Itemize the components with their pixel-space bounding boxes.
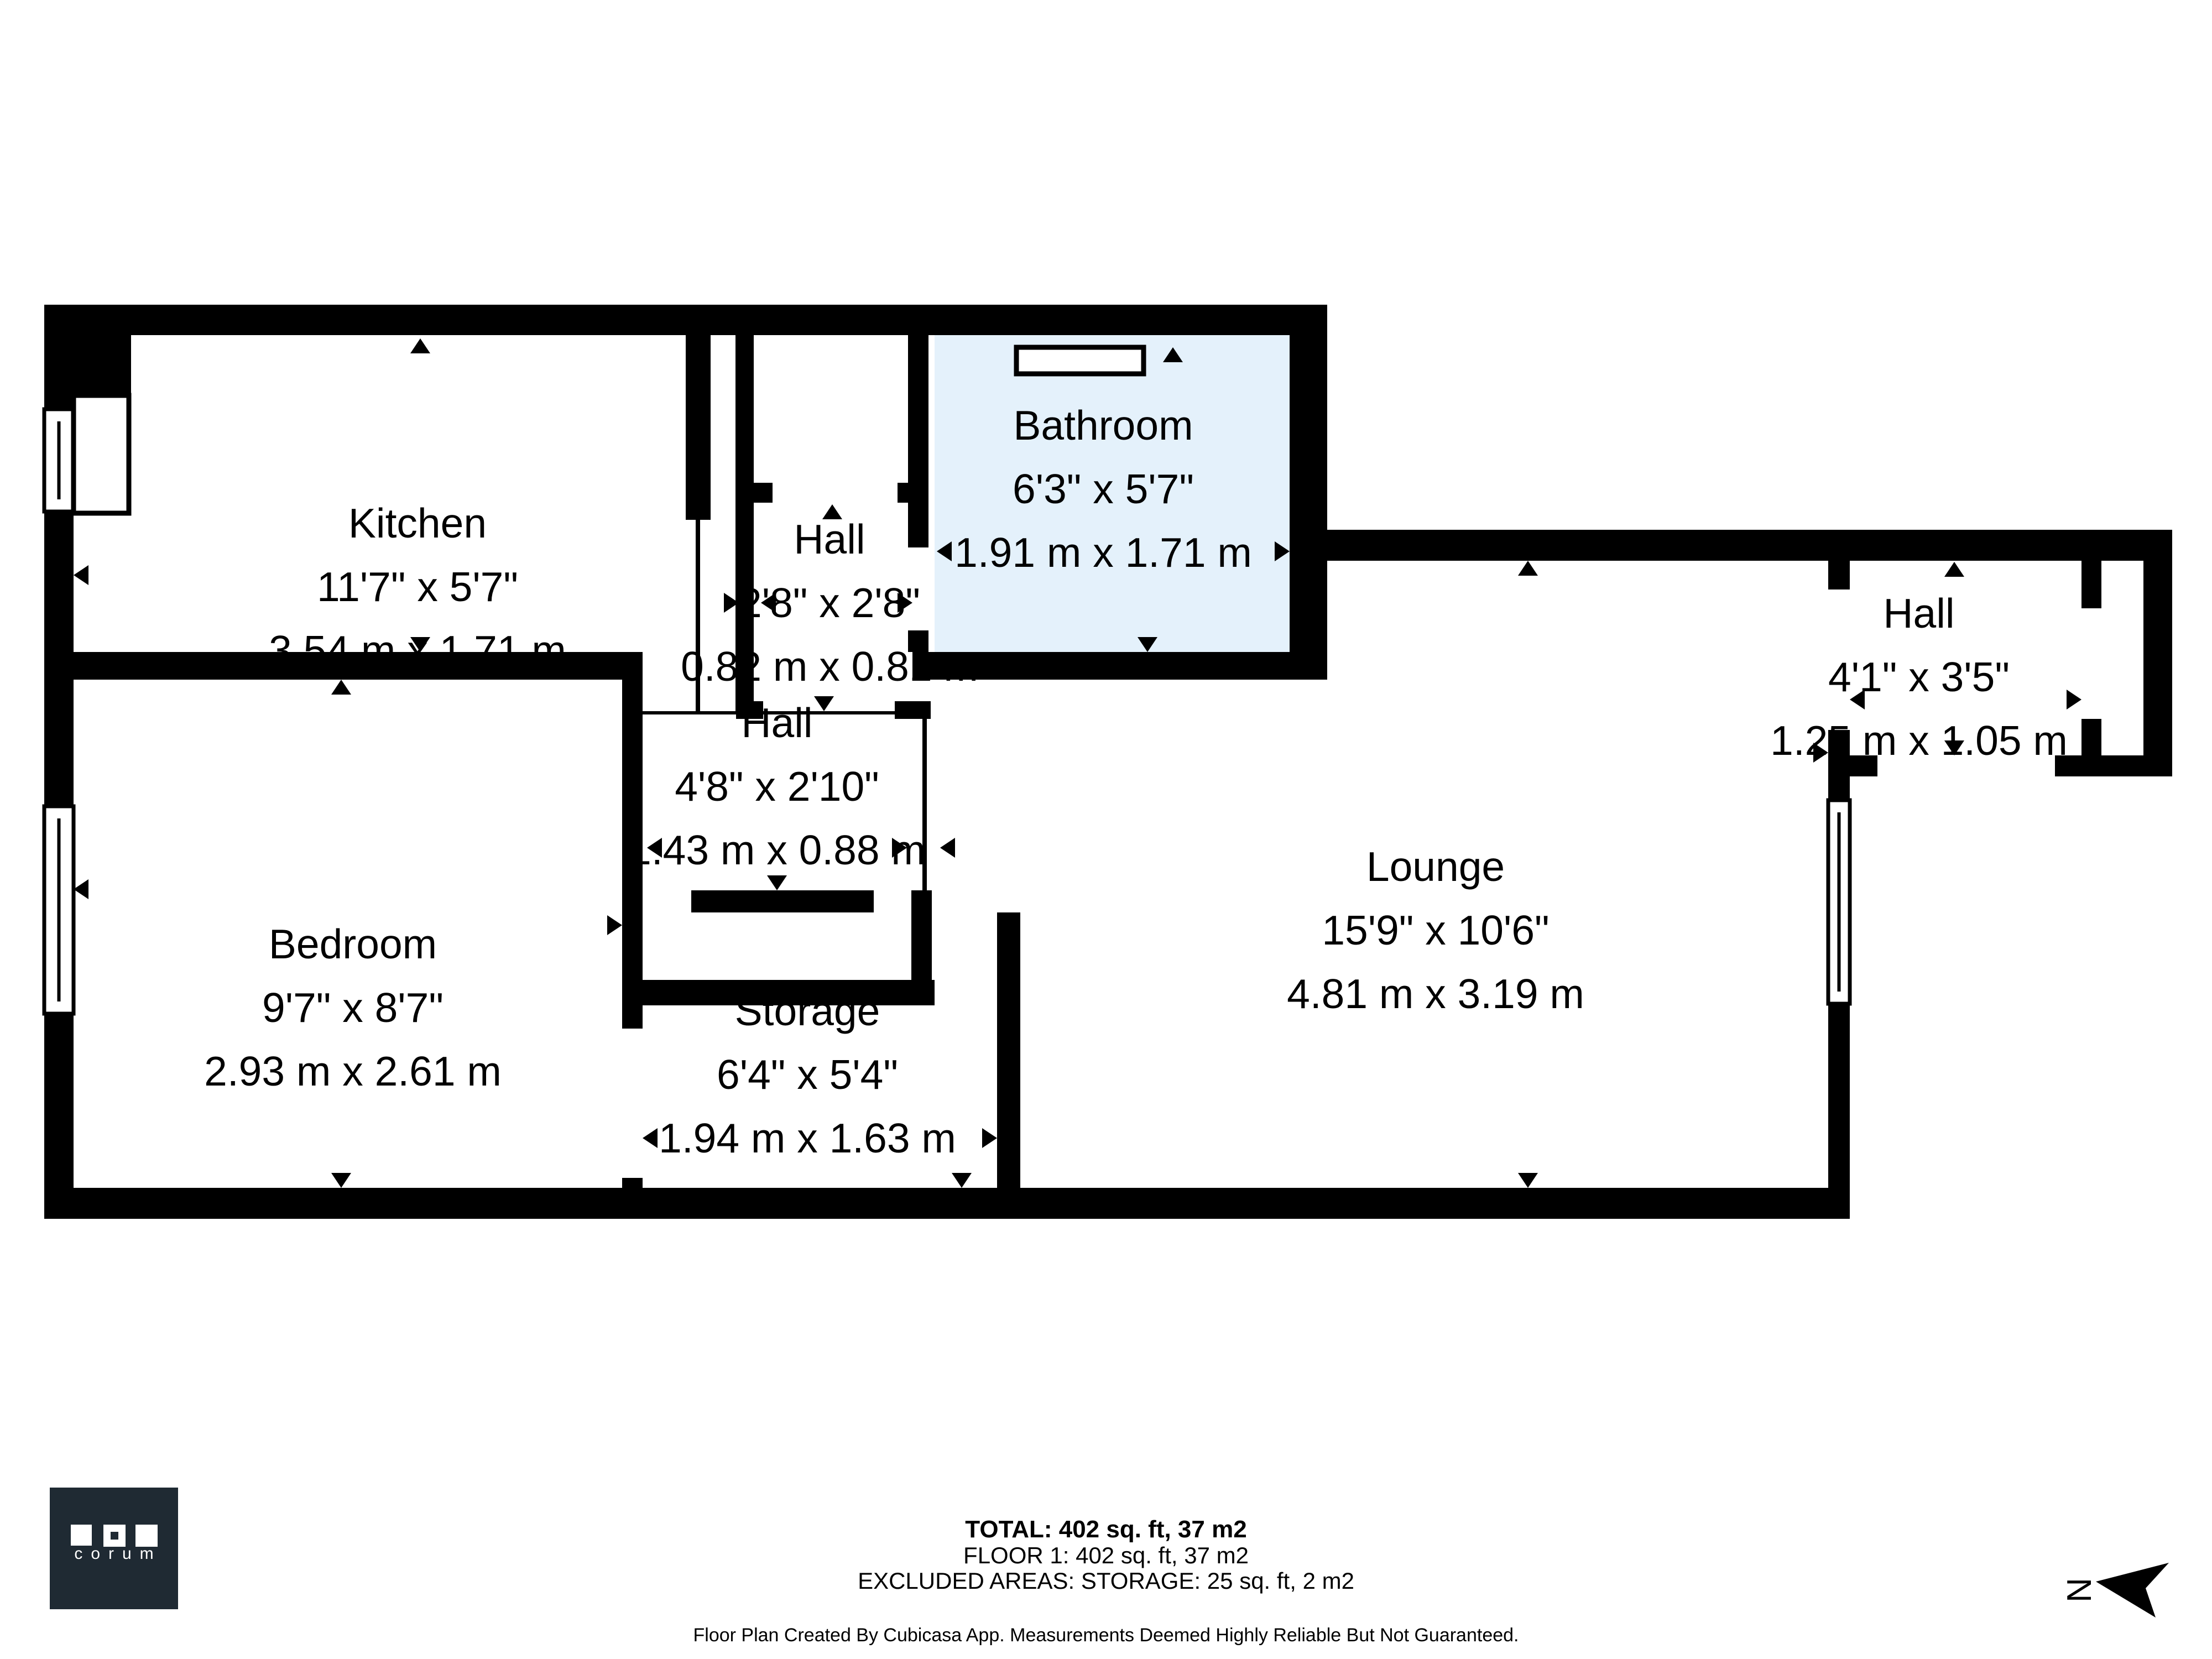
measure-arrow-storage-right: [982, 1128, 997, 1148]
measure-arrow-hall-right-right: [2067, 690, 2081, 709]
measure-arrow-storage-left: [643, 1128, 658, 1148]
room-name: Storage: [659, 979, 956, 1043]
room-label-lounge: Lounge 15'9" x 10'6" 4.81 m x 3.19 m: [1287, 835, 1584, 1026]
room-size-metric: 1.91 m x 1.71 m: [954, 521, 1252, 585]
excluded-area-text: EXCLUDED AREAS: STORAGE: 25 sq. ft, 2 m2: [858, 1568, 1354, 1594]
wall-hallright-partition-upper: [2081, 561, 2101, 608]
wall-vestibule-jamb-left: [754, 483, 773, 503]
logo-aperture-icon: [103, 1525, 126, 1547]
logo-text: corum: [50, 1545, 178, 1563]
room-size-imperial: 4'1" x 3'5": [1770, 645, 2068, 709]
room-size-metric: 1.25 m x 1.05 m: [1770, 709, 2068, 773]
wall-ext-top: [44, 305, 1327, 335]
room-name: Bedroom: [204, 912, 502, 976]
window-lounge-mullion: [1838, 812, 1841, 992]
fixture-bathroom-sink: [1016, 347, 1144, 374]
disclaimer-text: Floor Plan Created By Cubicasa App. Meas…: [693, 1625, 1519, 1646]
room-size-metric: 3.54 m x 1.71 m: [269, 619, 566, 682]
floor-plan: Kitchen 11'7" x 5'7" 3.54 m x 1.71 m Hal…: [0, 0, 2212, 1659]
logo-square-icon: [71, 1525, 92, 1546]
logo-square-icon: [135, 1525, 158, 1547]
measure-arrow-lounge-down: [1518, 1173, 1538, 1188]
measure-arrow-bedroom-left: [74, 879, 88, 899]
wall-hallright-partition-lower: [2081, 719, 2101, 755]
wall-storage-right: [997, 912, 1020, 1188]
measure-arrow-storage-down: [952, 1173, 972, 1188]
room-size-imperial: 9'7" x 8'7": [204, 976, 502, 1040]
measure-arrow-lounge-up: [1518, 561, 1538, 576]
room-label-bathroom: Bathroom 6'3" x 5'7" 1.91 m x 1.71 m: [954, 394, 1252, 585]
compass-north-label: N: [2060, 1578, 2099, 1603]
room-size-imperial: 11'7" x 5'7": [269, 555, 566, 619]
room-label-hall-small: Hall 2'8" x 2'8" 0.82 m x 0.81 m: [681, 508, 978, 698]
corum-logo: corum: [50, 1488, 178, 1609]
measure-arrow-kitchen-up: [410, 338, 430, 353]
wall-ext-bottom: [44, 1188, 1850, 1219]
floor-area-text: FLOOR 1: 402 sq. ft, 37 m2: [858, 1543, 1354, 1568]
room-label-storage: Storage 6'4" x 5'4" 1.94 m x 1.63 m: [659, 979, 956, 1170]
room-size-metric: 1.43 m x 0.88 m: [628, 818, 926, 882]
measure-arrow-lounge-left: [940, 838, 955, 858]
room-name: Kitchen: [269, 492, 566, 555]
wall-hall-bottom: [691, 890, 874, 912]
room-size-imperial: 2'8" x 2'8": [681, 571, 978, 635]
room-name: Hall: [1770, 582, 2068, 645]
floor-plan-drawing: [0, 0, 2212, 1659]
window-bedroom-mullion: [58, 818, 61, 1001]
measure-arrow-bedroom-down: [331, 1173, 351, 1188]
wall-kitchen-right: [686, 335, 711, 520]
room-name: Bathroom: [954, 394, 1252, 457]
room-label-hall-right: Hall 4'1" x 3'5" 1.25 m x 1.05 m: [1770, 582, 2068, 773]
total-area-text: TOTAL: 402 sq. ft, 37 m2: [858, 1516, 1354, 1543]
measure-arrow-hall-right-up: [1944, 562, 1964, 577]
wall-bathroom-right: [1290, 305, 1327, 680]
wall-lounge-right-lower: [1828, 1004, 1850, 1188]
wall-corner-block: [44, 305, 131, 395]
room-size-metric: 0.82 m x 0.81 m: [681, 635, 978, 698]
north-arrow-icon: [2096, 1563, 2169, 1618]
room-size-metric: 4.81 m x 3.19 m: [1287, 962, 1584, 1026]
wall-ext-right: [2143, 530, 2172, 776]
area-summary: TOTAL: 402 sq. ft, 37 m2 FLOOR 1: 402 sq…: [858, 1516, 1354, 1594]
wall-lounge-top: [1327, 530, 2172, 561]
room-size-imperial: 15'9" x 10'6": [1287, 899, 1584, 962]
wall-bedroom-right-lower: [622, 1178, 643, 1190]
room-size-metric: 1.94 m x 1.63 m: [659, 1107, 956, 1170]
wall-vestibule-jamb-right: [898, 483, 928, 503]
measure-arrow-bedroom-right: [607, 915, 622, 935]
room-size-imperial: 6'3" x 5'7": [954, 457, 1252, 521]
room-label-bedroom: Bedroom 9'7" x 8'7" 2.93 m x 2.61 m: [204, 912, 502, 1103]
room-name: Hall: [681, 508, 978, 571]
room-label-hall-center: Hall 4'8" x 2'10" 1.43 m x 0.88 m: [628, 691, 926, 882]
measure-arrow-kitchen-left: [74, 565, 88, 585]
room-size-imperial: 4'8" x 2'10": [628, 755, 926, 818]
window-kitchen-mullion: [58, 421, 61, 499]
room-label-kitchen: Kitchen 11'7" x 5'7" 3.54 m x 1.71 m: [269, 492, 566, 682]
room-name: Lounge: [1287, 835, 1584, 899]
room-size-metric: 2.93 m x 2.61 m: [204, 1040, 502, 1103]
fixture-kitchen-counter: [74, 395, 129, 513]
room-name: Hall: [628, 691, 926, 755]
room-size-imperial: 6'4" x 5'4": [659, 1043, 956, 1107]
